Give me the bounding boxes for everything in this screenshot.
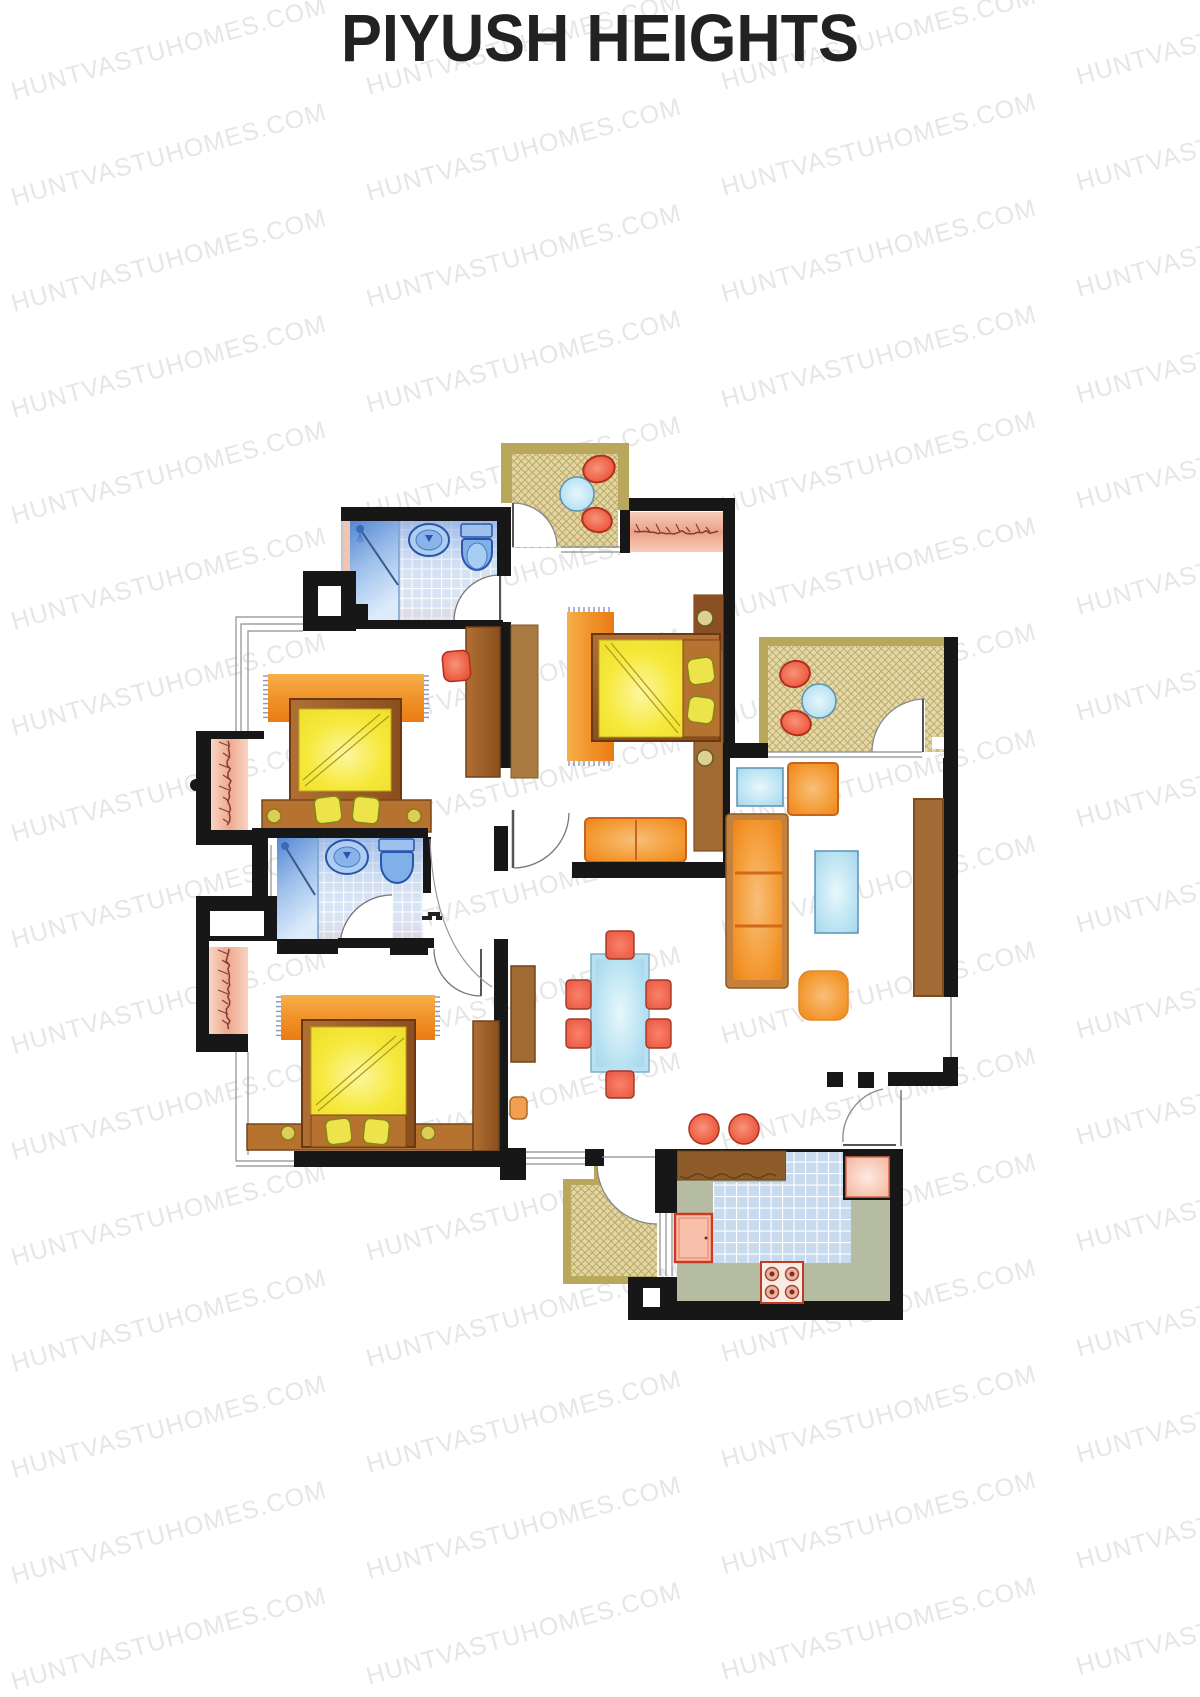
svg-text:HUNTVASTUHOMES.COM: HUNTVASTUHOMES.COM (8, 1476, 330, 1590)
svg-text:PIYUSH HEIGHTS: PIYUSH HEIGHTS (341, 1, 859, 76)
svg-text:HUNTVASTUHOMES.COM: HUNTVASTUHOMES.COM (1073, 1567, 1200, 1681)
svg-text:HUNTVASTUHOMES.COM: HUNTVASTUHOMES.COM (8, 1158, 330, 1272)
svg-text:HUNTVASTUHOMES.COM: HUNTVASTUHOMES.COM (1073, 1037, 1200, 1151)
svg-text:HUNTVASTUHOMES.COM: HUNTVASTUHOMES.COM (1073, 507, 1200, 621)
svg-text:HUNTVASTUHOMES.COM: HUNTVASTUHOMES.COM (718, 1360, 1040, 1474)
svg-text:HUNTVASTUHOMES.COM: HUNTVASTUHOMES.COM (1073, 401, 1200, 515)
svg-text:HUNTVASTUHOMES.COM: HUNTVASTUHOMES.COM (1073, 295, 1200, 409)
svg-text:HUNTVASTUHOMES.COM: HUNTVASTUHOMES.COM (718, 1466, 1040, 1580)
svg-text:HUNTVASTUHOMES.COM: HUNTVASTUHOMES.COM (363, 93, 685, 207)
svg-text:HUNTVASTUHOMES.COM: HUNTVASTUHOMES.COM (363, 1577, 685, 1691)
svg-text:HUNTVASTUHOMES.COM: HUNTVASTUHOMES.COM (1073, 719, 1200, 833)
svg-text:HUNTVASTUHOMES.COM: HUNTVASTUHOMES.COM (1073, 1143, 1200, 1257)
svg-text:HUNTVASTUHOMES.COM: HUNTVASTUHOMES.COM (8, 1264, 330, 1378)
svg-text:HUNTVASTUHOMES.COM: HUNTVASTUHOMES.COM (8, 416, 330, 530)
svg-text:HUNTVASTUHOMES.COM: HUNTVASTUHOMES.COM (718, 1572, 1040, 1686)
svg-text:HUNTVASTUHOMES.COM: HUNTVASTUHOMES.COM (363, 305, 685, 419)
svg-text:HUNTVASTUHOMES.COM: HUNTVASTUHOMES.COM (363, 1365, 685, 1479)
svg-text:HUNTVASTUHOMES.COM: HUNTVASTUHOMES.COM (363, 1471, 685, 1585)
svg-text:HUNTVASTUHOMES.COM: HUNTVASTUHOMES.COM (363, 199, 685, 313)
svg-text:HUNTVASTUHOMES.COM: HUNTVASTUHOMES.COM (8, 1582, 330, 1696)
svg-text:HUNTVASTUHOMES.COM: HUNTVASTUHOMES.COM (718, 1042, 1040, 1156)
svg-text:HUNTVASTUHOMES.COM: HUNTVASTUHOMES.COM (718, 406, 1040, 520)
svg-text:HUNTVASTUHOMES.COM: HUNTVASTUHOMES.COM (718, 88, 1040, 202)
svg-text:HUNTVASTUHOMES.COM: HUNTVASTUHOMES.COM (1073, 1461, 1200, 1575)
svg-text:HUNTVASTUHOMES.COM: HUNTVASTUHOMES.COM (718, 300, 1040, 414)
svg-text:HUNTVASTUHOMES.COM: HUNTVASTUHOMES.COM (1073, 613, 1200, 727)
svg-text:HUNTVASTUHOMES.COM: HUNTVASTUHOMES.COM (1073, 1355, 1200, 1469)
svg-text:HUNTVASTUHOMES.COM: HUNTVASTUHOMES.COM (8, 0, 330, 106)
svg-text:HUNTVASTUHOMES.COM: HUNTVASTUHOMES.COM (8, 522, 330, 636)
svg-text:HUNTVASTUHOMES.COM: HUNTVASTUHOMES.COM (8, 98, 330, 212)
svg-text:HUNTVASTUHOMES.COM: HUNTVASTUHOMES.COM (1073, 1249, 1200, 1363)
svg-text:HUNTVASTUHOMES.COM: HUNTVASTUHOMES.COM (718, 512, 1040, 626)
svg-text:HUNTVASTUHOMES.COM: HUNTVASTUHOMES.COM (8, 310, 330, 424)
svg-text:HUNTVASTUHOMES.COM: HUNTVASTUHOMES.COM (1073, 825, 1200, 939)
svg-text:HUNTVASTUHOMES.COM: HUNTVASTUHOMES.COM (1073, 931, 1200, 1045)
svg-text:HUNTVASTUHOMES.COM: HUNTVASTUHOMES.COM (1073, 83, 1200, 197)
svg-text:HUNTVASTUHOMES.COM: HUNTVASTUHOMES.COM (1073, 0, 1200, 91)
svg-text:HUNTVASTUHOMES.COM: HUNTVASTUHOMES.COM (8, 1370, 330, 1484)
svg-text:HUNTVASTUHOMES.COM: HUNTVASTUHOMES.COM (718, 194, 1040, 308)
svg-text:HUNTVASTUHOMES.COM: HUNTVASTUHOMES.COM (8, 204, 330, 318)
svg-text:HUNTVASTUHOMES.COM: HUNTVASTUHOMES.COM (1073, 189, 1200, 303)
